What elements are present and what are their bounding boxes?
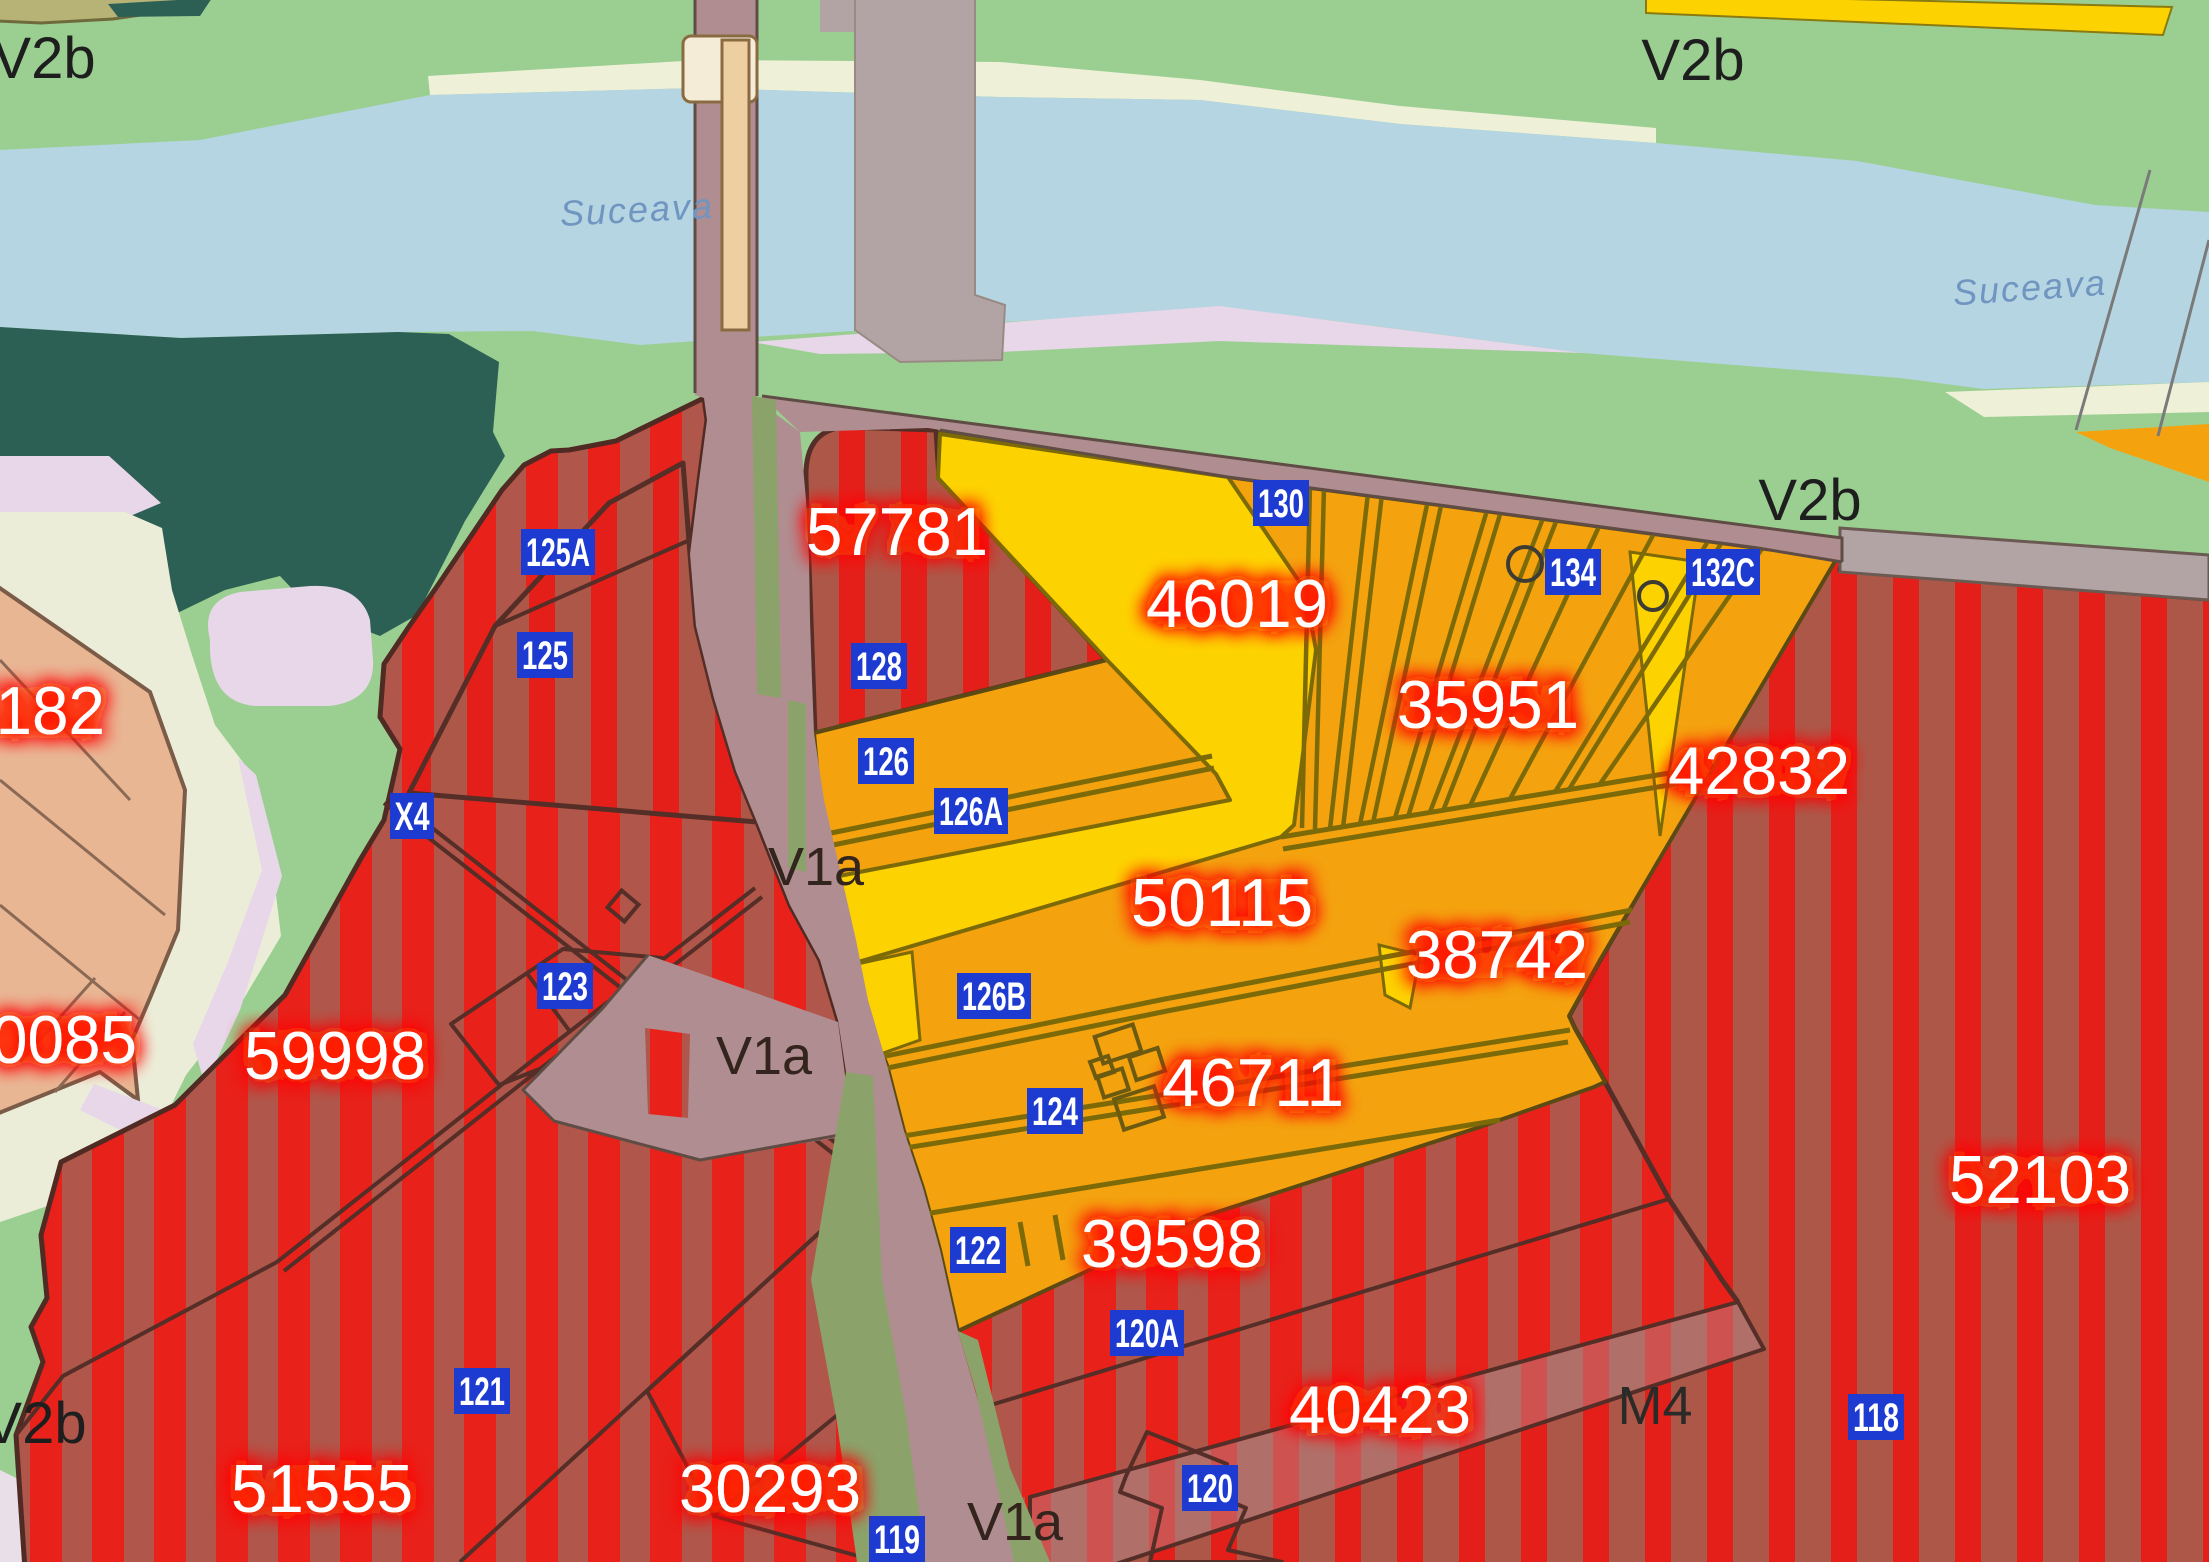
- svg-text:122: 122: [955, 1229, 1001, 1273]
- svg-text:126: 126: [863, 740, 909, 784]
- svg-text:V1a: V1a: [716, 1026, 813, 1086]
- svg-text:52103: 52103: [1949, 1142, 2131, 1218]
- svg-text:126B: 126B: [962, 975, 1026, 1019]
- svg-text:119: 119: [874, 1518, 920, 1562]
- svg-text:39598: 39598: [1081, 1206, 1263, 1282]
- svg-text:130: 130: [1258, 482, 1304, 526]
- svg-text:V1a: V1a: [768, 837, 865, 897]
- svg-text:118: 118: [1853, 1396, 1899, 1440]
- svg-text:0085: 0085: [0, 1002, 137, 1078]
- svg-text:V2b: V2b: [0, 26, 96, 91]
- svg-text:Suceava: Suceava: [559, 185, 715, 234]
- svg-text:125A: 125A: [526, 531, 590, 575]
- svg-text:128: 128: [856, 645, 902, 689]
- svg-text:M4: M4: [1617, 1376, 1692, 1436]
- svg-text:120A: 120A: [1115, 1312, 1179, 1356]
- svg-text:126A: 126A: [939, 790, 1003, 834]
- svg-text:V2b: V2b: [1641, 28, 1744, 93]
- svg-text:59998: 59998: [244, 1018, 426, 1094]
- svg-text:X4: X4: [395, 795, 431, 839]
- svg-text:132C: 132C: [1691, 551, 1755, 595]
- svg-text:38742: 38742: [1406, 917, 1588, 993]
- svg-text:121: 121: [459, 1370, 505, 1414]
- svg-text:42832: 42832: [1668, 733, 1850, 809]
- svg-text:57781: 57781: [806, 494, 988, 570]
- svg-text:46711: 46711: [1162, 1045, 1344, 1121]
- svg-text:40423: 40423: [1289, 1372, 1471, 1448]
- svg-text:V2b: V2b: [1758, 468, 1861, 533]
- svg-text:123: 123: [542, 965, 588, 1009]
- svg-text:51555: 51555: [231, 1451, 413, 1527]
- svg-text:134: 134: [1550, 551, 1597, 595]
- svg-text:V2b: V2b: [0, 1391, 87, 1456]
- svg-text:50115: 50115: [1131, 865, 1313, 941]
- svg-text:125: 125: [522, 634, 568, 678]
- svg-text:35951: 35951: [1397, 667, 1579, 743]
- svg-text:V1a: V1a: [967, 1492, 1064, 1552]
- svg-text:124: 124: [1032, 1090, 1079, 1134]
- svg-text:120: 120: [1187, 1467, 1233, 1511]
- svg-text:46019: 46019: [1146, 566, 1328, 642]
- svg-text:30293: 30293: [679, 1451, 861, 1527]
- svg-text:5182: 5182: [0, 673, 105, 749]
